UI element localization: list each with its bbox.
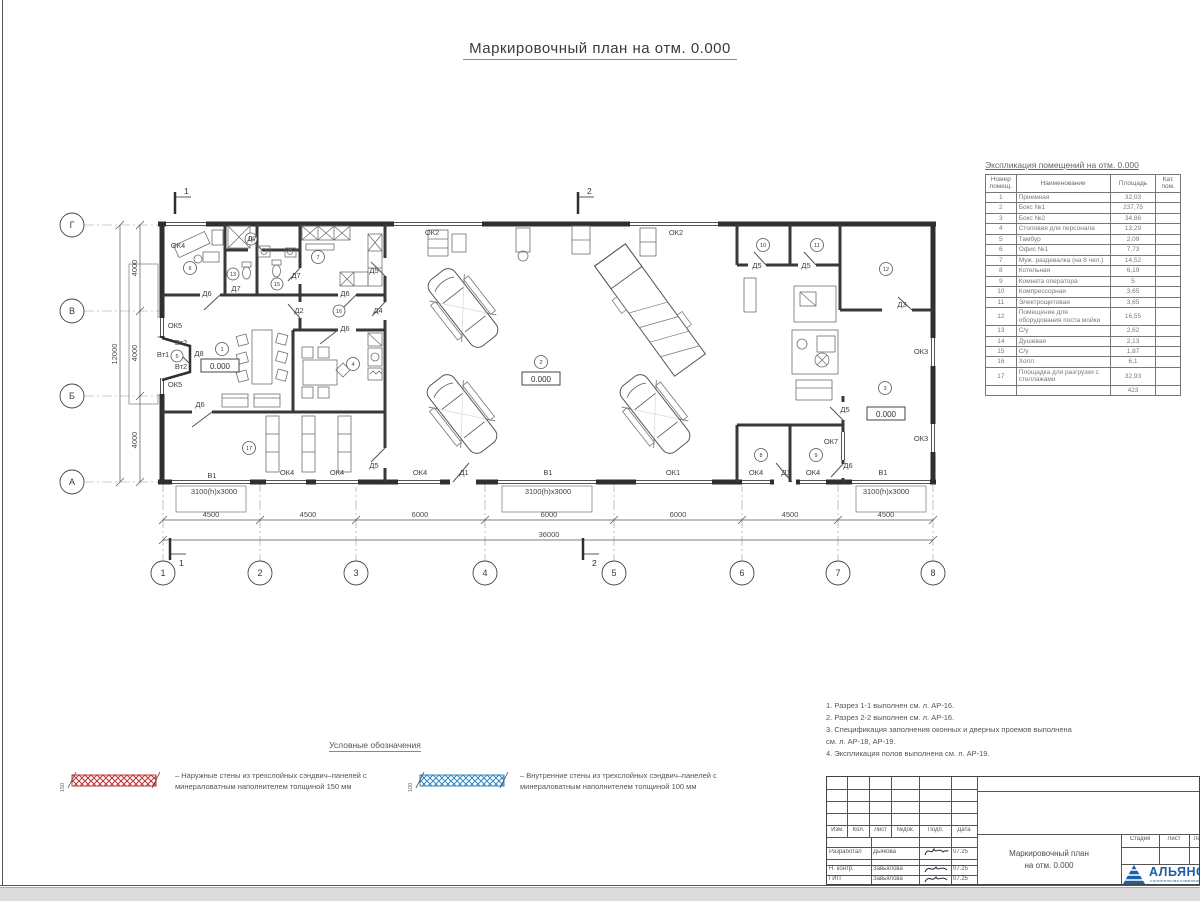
svg-text:10: 10 — [760, 243, 766, 249]
table-row: 1Приемная32,03 — [986, 192, 1181, 202]
col-header-cat: Кат. пом. — [1156, 175, 1181, 193]
table-cell: 3 — [986, 213, 1017, 223]
svg-text:А: А — [69, 477, 75, 487]
table-cell — [1016, 385, 1110, 395]
tb-date-developer: 07.25 — [953, 849, 968, 855]
svg-text:6: 6 — [739, 568, 744, 578]
svg-text:Г: Г — [70, 220, 75, 230]
svg-text:12: 12 — [883, 267, 889, 273]
tb-col-ndok: №док. — [892, 827, 919, 833]
table-cell — [1156, 308, 1181, 326]
svg-text:ОК3: ОК3 — [914, 434, 928, 443]
svg-text:Д5: Д5 — [752, 261, 761, 270]
svg-text:Д7: Д7 — [247, 234, 256, 243]
table-cell: 12 — [986, 308, 1017, 326]
svg-text:7: 7 — [835, 568, 840, 578]
svg-text:4000: 4000 — [130, 260, 139, 277]
table-cell — [1156, 203, 1181, 213]
table-cell: Тамбур — [1016, 234, 1110, 244]
svg-text:4500: 4500 — [300, 510, 317, 519]
table-cell: 9 — [986, 276, 1017, 286]
table-row: 15С/у1,87 — [986, 346, 1181, 356]
svg-text:4000: 4000 — [130, 345, 139, 362]
svg-text:36000: 36000 — [539, 530, 560, 539]
svg-text:Д8: Д8 — [194, 349, 203, 358]
elevation-value: 0.000 — [876, 410, 897, 419]
table-cell: 4 — [986, 224, 1017, 234]
svg-text:5: 5 — [175, 354, 178, 360]
table-cell: Душевая — [1016, 336, 1110, 346]
logo-subtitle: строительная компания — [1150, 878, 1200, 883]
svg-text:Д1: Д1 — [781, 468, 790, 477]
svg-text:Д2: Д2 — [294, 306, 303, 315]
table-cell — [1156, 287, 1181, 297]
svg-text:Д6: Д6 — [843, 461, 852, 470]
tb-sheets-header: Лист — [1190, 836, 1200, 842]
table-cell — [1156, 336, 1181, 346]
table-row: 14Душевая2,13 — [986, 336, 1181, 346]
svg-text:ОК3: ОК3 — [914, 347, 928, 356]
svg-text:6: 6 — [188, 266, 191, 272]
svg-text:9: 9 — [814, 453, 817, 459]
table-cell — [1156, 245, 1181, 255]
tb-col-list: Лист — [870, 827, 891, 833]
svg-text:6000: 6000 — [670, 510, 687, 519]
svg-text:4000: 4000 — [130, 432, 139, 449]
table-cell — [1156, 213, 1181, 223]
table-row: 4Столовая для персонала13,29 — [986, 224, 1181, 234]
note-line: см. л. АР-18, АР-19. — [826, 736, 1156, 748]
svg-text:Д6: Д6 — [340, 289, 349, 298]
elevation-value: 0.000 — [531, 375, 552, 384]
table-cell: Компрессорная — [1016, 287, 1110, 297]
table-cell: 423 — [1110, 385, 1156, 395]
tb-role-ncontrol: Н. контр. — [829, 866, 854, 872]
table-cell: 7 — [986, 255, 1017, 265]
logo-text: АЛЬЯНС — [1149, 865, 1200, 879]
svg-text:3100(h)х3000: 3100(h)х3000 — [863, 487, 909, 496]
table-cell: Помещение для оборудования поста мойки — [1016, 308, 1110, 326]
elevation-value: 0.000 — [210, 362, 231, 371]
svg-text:Д5: Д5 — [369, 461, 378, 470]
note-line: 4. Экспликация полов выполнена см. л. АР… — [826, 748, 1156, 760]
table-cell: Холл — [1016, 357, 1110, 367]
table-cell: С/у — [1016, 326, 1110, 336]
svg-text:Д4: Д4 — [373, 306, 382, 315]
tb-role-gip: ГИП — [829, 876, 841, 882]
table-cell: 2,13 — [1110, 336, 1156, 346]
ok7-window — [842, 432, 845, 460]
svg-text:11: 11 — [814, 243, 820, 249]
table-cell: Столовая для персонала — [1016, 224, 1110, 234]
svg-text:4: 4 — [351, 362, 354, 368]
table-total-row: 423 — [986, 385, 1181, 395]
legend-title: Условные обозначения — [255, 740, 495, 750]
table-cell: 10 — [986, 287, 1017, 297]
table-row: 10Компрессорная3,65 — [986, 287, 1181, 297]
table-cell: 237,75 — [1110, 203, 1156, 213]
table-cell: 13,29 — [1110, 224, 1156, 234]
truck — [590, 240, 710, 379]
table-cell: 8 — [986, 266, 1017, 276]
svg-text:2: 2 — [592, 558, 597, 568]
svg-text:Д7: Д7 — [231, 284, 240, 293]
table-cell — [1156, 385, 1181, 395]
svg-text:13: 13 — [230, 272, 236, 278]
logo-triangle-icon — [1123, 865, 1145, 885]
table-row: 9Комната оператора5 — [986, 276, 1181, 286]
table-cell: 5 — [1110, 276, 1156, 286]
table-cell — [1156, 346, 1181, 356]
table-row: 7Муж. раздевалка (на 8 чел.)14,52 — [986, 255, 1181, 265]
svg-text:8: 8 — [759, 453, 762, 459]
table-cell: С/у — [1016, 346, 1110, 356]
svg-text:12000: 12000 — [110, 344, 119, 365]
table-row: 5Тамбур2,09 — [986, 234, 1181, 244]
svg-text:ОК7: ОК7 — [824, 437, 838, 446]
svg-text:ОК5: ОК5 — [168, 380, 182, 389]
table-row: 12Помещение для оборудования поста мойки… — [986, 308, 1181, 326]
svg-text:1: 1 — [220, 347, 223, 353]
svg-text:4500: 4500 — [782, 510, 799, 519]
svg-text:Д1: Д1 — [459, 468, 468, 477]
svg-text:6000: 6000 — [541, 510, 558, 519]
table-cell — [1156, 192, 1181, 202]
table-cell — [1156, 255, 1181, 265]
table-cell: 2,09 — [1110, 234, 1156, 244]
svg-text:Д5: Д5 — [369, 266, 378, 275]
table-cell: 2 — [986, 203, 1017, 213]
table-cell: Приемная — [1016, 192, 1110, 202]
svg-text:ОК4: ОК4 — [330, 468, 344, 477]
svg-text:ОК4: ОК4 — [280, 468, 294, 477]
svg-text:5: 5 — [611, 568, 616, 578]
signature-gip — [923, 874, 949, 885]
table-cell: 16 — [986, 357, 1017, 367]
room-table: Номер помещ. Наименование Площадь Кат. п… — [985, 174, 1181, 396]
table-cell: Бокс №1 — [1016, 203, 1110, 213]
tb-name-developer: Дьякова — [873, 849, 896, 855]
svg-text:4500: 4500 — [878, 510, 895, 519]
svg-text:8: 8 — [930, 568, 935, 578]
svg-text:2: 2 — [257, 568, 262, 578]
svg-text:4: 4 — [482, 568, 487, 578]
table-cell: Бокс №2 — [1016, 213, 1110, 223]
tb-stage-header: Стадия — [1122, 836, 1158, 842]
svg-text:Вт2: Вт2 — [175, 362, 187, 371]
tb-name-ncontrol: Завьялова — [873, 866, 903, 872]
room-schedule-title: Экспликация помещений на отм. 0.000 — [985, 160, 1181, 170]
tb-date-gip: 07.25 — [953, 876, 968, 882]
table-cell: Офис №1 — [1016, 245, 1110, 255]
svg-text:16: 16 — [336, 309, 342, 315]
col-header-name: Наименование — [1016, 175, 1110, 193]
table-cell — [1156, 276, 1181, 286]
table-cell: 13 — [986, 326, 1017, 336]
doc-title: Маркировочный план на отм. 0.000 — [977, 834, 1121, 885]
signature-developer — [923, 845, 949, 858]
table-cell: 14,52 — [1110, 255, 1156, 265]
table-cell: 3,65 — [1110, 297, 1156, 307]
table-cell: 5 — [986, 234, 1017, 244]
table-cell: 1,87 — [1110, 346, 1156, 356]
svg-text:3100(h)х3000: 3100(h)х3000 — [191, 487, 237, 496]
table-cell — [1156, 326, 1181, 336]
table-cell — [1156, 367, 1181, 385]
table-cell — [1156, 297, 1181, 307]
svg-text:В1: В1 — [543, 468, 552, 477]
room-table-body: 1Приемная32,032Бокс №1237,753Бокс №234,8… — [986, 192, 1181, 395]
note-line: 1. Разрез 1-1 выполнен см. л. АР-16. — [826, 700, 1156, 712]
doc-title-line2: на отм. 0.000 — [1025, 860, 1074, 872]
table-cell — [986, 385, 1017, 395]
svg-text:3: 3 — [353, 568, 358, 578]
svg-text:Вт1: Вт1 — [157, 350, 169, 359]
svg-text:ОК4: ОК4 — [806, 468, 820, 477]
drawing-sheet: { "title": "Маркировочный план на отм. 0… — [0, 0, 1200, 900]
svg-text:2: 2 — [539, 360, 542, 366]
svg-text:1: 1 — [160, 568, 165, 578]
svg-text:ОК4: ОК4 — [171, 241, 185, 250]
table-row: 16Холл6,1 — [986, 357, 1181, 367]
table-cell — [1156, 357, 1181, 367]
svg-text:ОК4: ОК4 — [749, 468, 763, 477]
room-schedule: Экспликация помещений на отм. 0.000 Номе… — [985, 160, 1181, 396]
svg-text:Д6: Д6 — [340, 324, 349, 333]
note-line: 3. Спецификация заполнения оконных и две… — [826, 724, 1156, 736]
svg-text:3100(h)х3000: 3100(h)х3000 — [525, 487, 571, 496]
tb-role-developer: Разработал — [829, 849, 862, 855]
svg-text:7: 7 — [316, 255, 319, 261]
table-cell — [1156, 234, 1181, 244]
svg-text:Д3: Д3 — [897, 300, 906, 309]
doc-title-line1: Маркировочный план — [1009, 848, 1089, 860]
tb-date-ncontrol: 07.25 — [953, 866, 968, 872]
table-row: 11Электрощитовая3,65 — [986, 297, 1181, 307]
table-cell: 17 — [986, 367, 1017, 385]
svg-text:Д6: Д6 — [202, 289, 211, 298]
svg-text:ОК4: ОК4 — [413, 468, 427, 477]
ramp-outline — [129, 264, 158, 404]
tb-name-gip: Завьялова — [873, 876, 903, 882]
table-row: 13С/у2,62 — [986, 326, 1181, 336]
svg-text:Вт2: Вт2 — [175, 338, 187, 347]
table-cell: 34,86 — [1110, 213, 1156, 223]
tb-col-podp: Подп. — [920, 827, 951, 833]
tb-col-data: Дата — [952, 827, 976, 833]
table-cell: Котельная — [1016, 266, 1110, 276]
table-cell: Электрощитовая — [1016, 297, 1110, 307]
svg-text:ОК2: ОК2 — [669, 228, 683, 237]
svg-text:1: 1 — [179, 558, 184, 568]
table-cell: Площадка для разгрузки с стеллажами — [1016, 367, 1110, 385]
svg-text:В: В — [69, 306, 75, 316]
svg-text:15: 15 — [274, 282, 280, 288]
table-cell: 11 — [986, 297, 1017, 307]
svg-text:Б: Б — [69, 391, 75, 401]
svg-text:Д7: Д7 — [291, 271, 300, 280]
table-cell: 16,55 — [1110, 308, 1156, 326]
table-row: 6Офис №17,73 — [986, 245, 1181, 255]
table-cell: 1 — [986, 192, 1017, 202]
legend-swatch-internal-wall — [412, 772, 512, 790]
svg-text:1: 1 — [184, 186, 189, 196]
table-cell: 7,73 — [1110, 245, 1156, 255]
legend-text-external-wall: – Наружные стены из трехслойных сэндвич–… — [175, 770, 375, 793]
tb-col-kol: Кол. — [848, 827, 869, 833]
svg-text:ОК5: ОК5 — [168, 321, 182, 330]
table-cell — [1156, 266, 1181, 276]
table-cell: 3,65 — [1110, 287, 1156, 297]
table-row: 17Площадка для разгрузки с стеллажами32,… — [986, 367, 1181, 385]
car-1 — [418, 260, 508, 356]
legend-swatch-external-wall — [64, 772, 164, 790]
svg-text:6000: 6000 — [412, 510, 429, 519]
svg-text:2: 2 — [587, 186, 592, 196]
svg-text:В1: В1 — [878, 468, 887, 477]
table-cell: 32,93 — [1110, 367, 1156, 385]
legend-text-internal-wall: – Внутренние стены из трехслойных сэндви… — [520, 770, 725, 793]
tb-col-izm: Изм. — [828, 827, 847, 833]
table-cell: Муж. раздевалка (на 8 чел.) — [1016, 255, 1110, 265]
table-cell: 6,1 — [1110, 357, 1156, 367]
table-cell: 6,19 — [1110, 266, 1156, 276]
car-3 — [610, 366, 700, 462]
company-logo: АЛЬЯНС строительная компания — [1123, 865, 1200, 885]
table-row: 8Котельная6,19 — [986, 266, 1181, 276]
outer-walls — [158, 222, 936, 484]
floor-plan: 0.000 0.000 0.000 1 2 3 4 5 6 7 8 9 10 1… — [0, 0, 1200, 900]
car-2 — [417, 366, 507, 462]
svg-text:Д6: Д6 — [195, 400, 204, 409]
col-header-number: Номер помещ. — [986, 175, 1017, 193]
table-cell: 2,62 — [1110, 326, 1156, 336]
table-row: 3Бокс №234,86 — [986, 213, 1181, 223]
table-cell: 32,03 — [1110, 192, 1156, 202]
table-cell: 14 — [986, 336, 1017, 346]
table-cell: 6 — [986, 245, 1017, 255]
table-cell — [1156, 224, 1181, 234]
notes: 1. Разрез 1-1 выполнен см. л. АР-16. 2. … — [826, 700, 1156, 760]
col-header-area: Площадь — [1110, 175, 1156, 193]
svg-text:Д5: Д5 — [801, 261, 810, 270]
table-cell: Комната оператора — [1016, 276, 1110, 286]
svg-text:4500: 4500 — [203, 510, 220, 519]
note-line: 2. Разрез 2-2 выполнен см. л. АР-16. — [826, 712, 1156, 724]
table-cell: 15 — [986, 346, 1017, 356]
title-block: Изм. Кол. Лист №док. Подп. Дата Разработ… — [826, 776, 1200, 885]
svg-text:3: 3 — [883, 386, 886, 392]
svg-text:ОК1: ОК1 — [666, 468, 680, 477]
table-row: 2Бокс №1237,75 — [986, 203, 1181, 213]
svg-text:ОК2: ОК2 — [425, 228, 439, 237]
svg-text:Д5: Д5 — [840, 405, 849, 414]
svg-text:17: 17 — [246, 446, 252, 452]
tb-sheet-header: Лист — [1160, 836, 1188, 842]
svg-text:В1: В1 — [207, 471, 216, 480]
